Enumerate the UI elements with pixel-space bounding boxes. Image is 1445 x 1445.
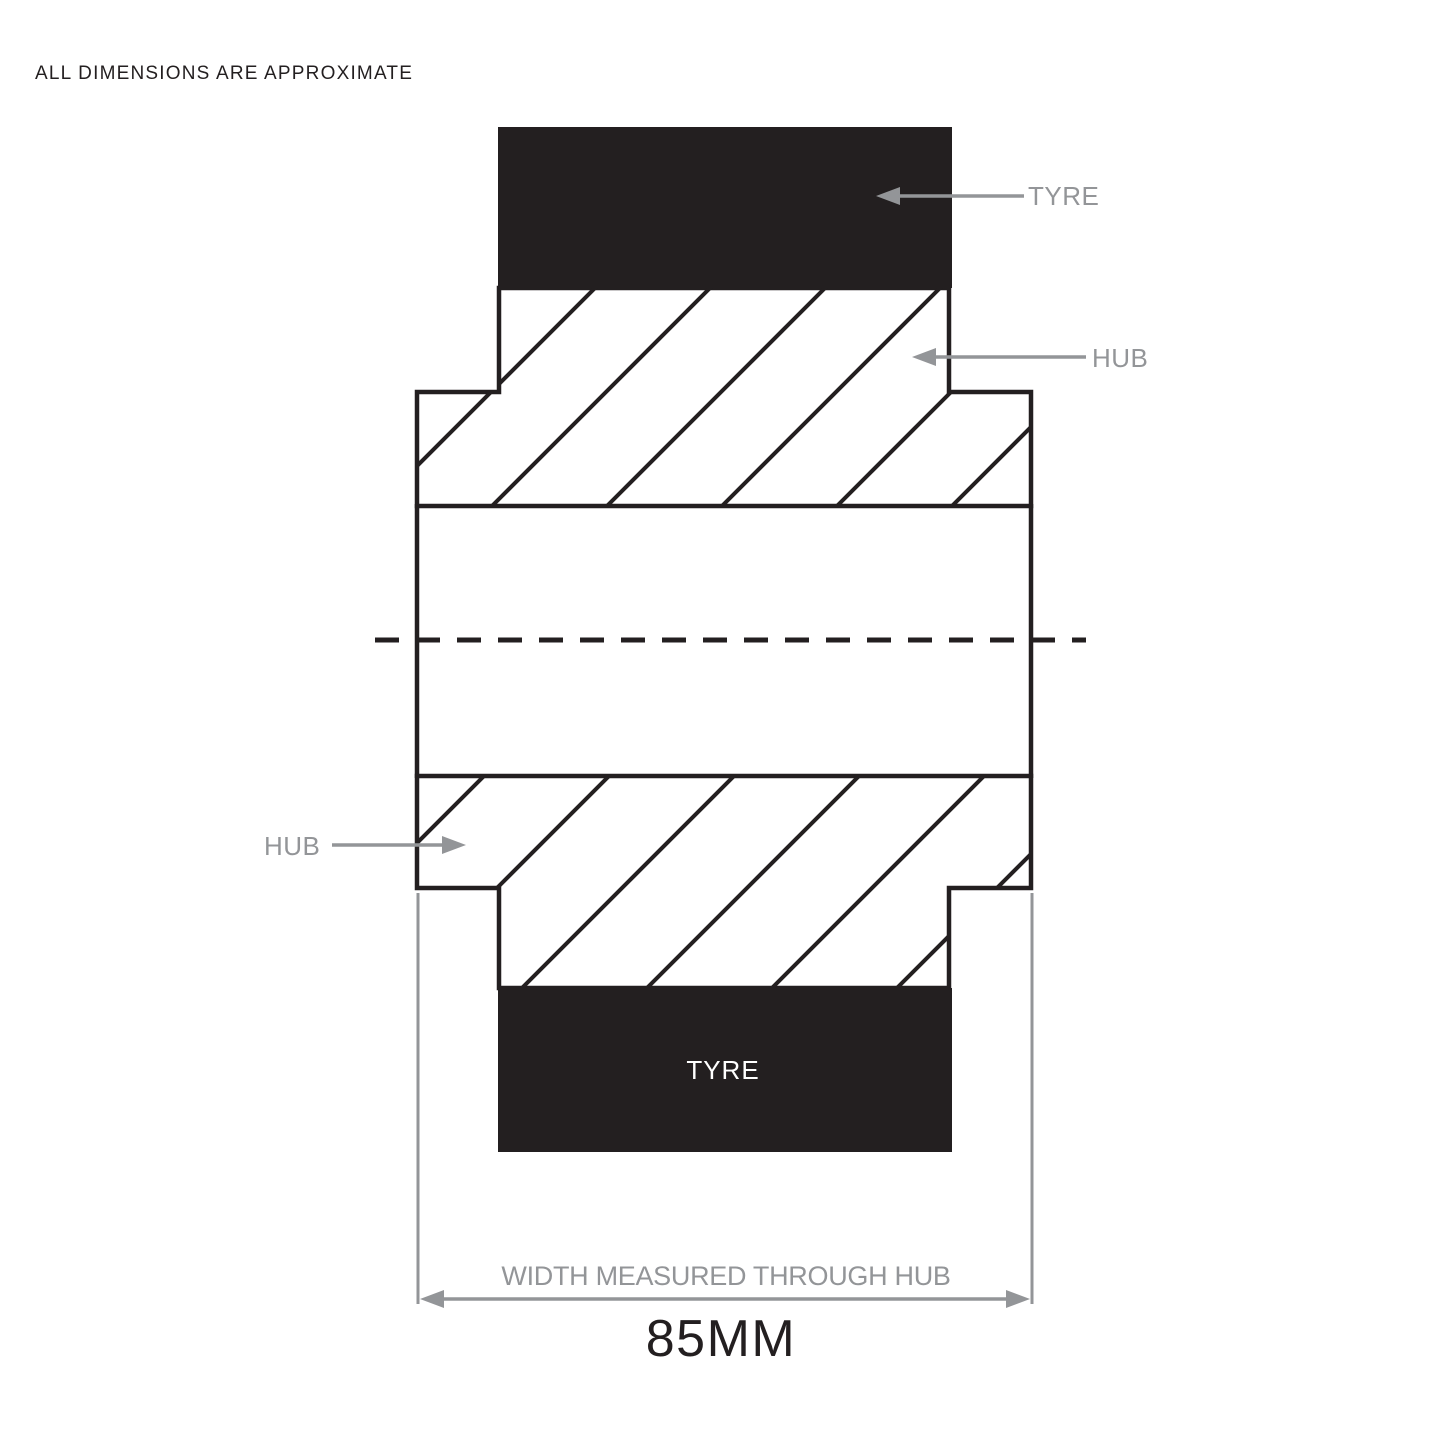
hub-left-label: HUB <box>264 833 320 859</box>
width-dimension-line <box>420 1290 1030 1308</box>
upper-hub-outline <box>417 288 1031 506</box>
hub-left-callout-arrow <box>332 836 466 854</box>
width-dimension-caption: WIDTH MEASURED THROUGH HUB <box>501 1263 950 1290</box>
tyre-top-section <box>498 127 952 288</box>
hub-right-label: HUB <box>1092 345 1148 371</box>
tyre-top-label: TYRE <box>1028 183 1099 209</box>
diagram-canvas: ALL DIMENSIONS ARE APPROXIMATE TYRE HUB … <box>0 0 1445 1445</box>
wheel-cross-section-drawing <box>0 0 1445 1445</box>
lower-hub-outline <box>417 776 1031 988</box>
tyre-bottom-label: TYRE <box>686 1057 759 1083</box>
disclaimer-text: ALL DIMENSIONS ARE APPROXIMATE <box>35 64 413 83</box>
width-dimension-value: 85MM <box>646 1313 796 1365</box>
